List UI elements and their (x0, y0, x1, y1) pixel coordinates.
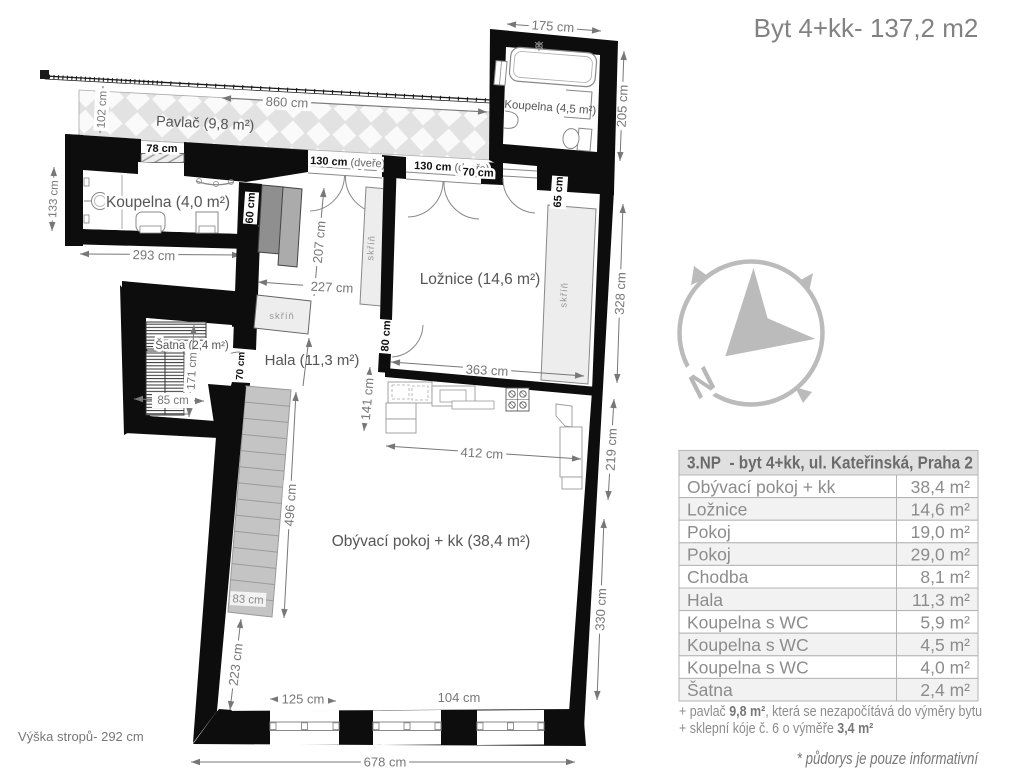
svg-text:Koupelna s WC: Koupelna s WC (687, 612, 809, 632)
svg-text:skříň: skříň (558, 282, 570, 308)
svg-text:Obývací pokoj + kk (38,4 m²): Obývací pokoj + kk (38,4 m²) (332, 533, 531, 550)
svg-text:102 cm: 102 cm (96, 90, 110, 128)
svg-text:175 cm: 175 cm (531, 17, 575, 35)
svg-text:4,5 m²: 4,5 m² (920, 635, 970, 655)
svg-text:Pokoj: Pokoj (687, 522, 731, 542)
svg-text:80 cm: 80 cm (379, 320, 393, 352)
svg-text:412 cm: 412 cm (460, 444, 503, 461)
svg-text:19,0 m²: 19,0 m² (911, 522, 970, 542)
svg-text:Ložnice (14,6 m²): Ložnice (14,6 m²) (420, 271, 541, 288)
svg-text:496 cm: 496 cm (281, 483, 299, 527)
svg-text:78 cm: 78 cm (146, 143, 177, 155)
svg-text:+ sklepní kóje č. 6 o výměře 3: + sklepní kóje č. 6 o výměře 3,4 m² (679, 720, 874, 736)
svg-text:133 cm: 133 cm (47, 180, 61, 218)
svg-text:8,1 m²: 8,1 m² (920, 567, 970, 587)
svg-text:Byt 4+kk- 137,2 m2: Byt 4+kk- 137,2 m2 (754, 13, 979, 43)
svg-text:skříň: skříň (365, 235, 378, 261)
svg-text:+ pavlač 9,8 m², která se neza: + pavlač 9,8 m², která se nezapočítává d… (679, 703, 982, 719)
svg-text:5,9 m²: 5,9 m² (920, 612, 970, 632)
svg-text:678 cm: 678 cm (364, 755, 407, 770)
svg-text:330 cm: 330 cm (592, 588, 609, 631)
svg-text:Koupelna (4,0 m²): Koupelna (4,0 m²) (106, 194, 230, 211)
svg-text:83 cm: 83 cm (232, 593, 264, 607)
svg-text:Obývací pokoj + kk: Obývací pokoj + kk (687, 477, 836, 497)
svg-text:29,0 m²: 29,0 m² (911, 545, 970, 565)
svg-text:171 cm: 171 cm (186, 352, 200, 390)
svg-text:85 cm: 85 cm (157, 395, 188, 407)
svg-text:11,3 m²: 11,3 m² (912, 590, 970, 610)
svg-text:Koupelna s WC: Koupelna s WC (687, 658, 809, 678)
svg-text:293 cm: 293 cm (132, 247, 175, 263)
svg-text:Hala: Hala (687, 590, 723, 610)
svg-text:2,4 m²: 2,4 m² (920, 680, 970, 700)
svg-text:104 cm: 104 cm (438, 690, 481, 705)
svg-text:* půdorys je pouze informativn: * půdorys je pouze informativní (797, 750, 980, 769)
svg-text:Chodba: Chodba (687, 567, 749, 587)
svg-text:60 cm: 60 cm (244, 192, 258, 224)
svg-text:70 cm: 70 cm (462, 166, 494, 179)
svg-text:860 cm: 860 cm (265, 94, 308, 111)
svg-text:Výška stropů- 292 cm: Výška stropů- 292 cm (18, 729, 144, 744)
svg-text:Ložnice: Ložnice (687, 499, 747, 519)
svg-text:328 cm: 328 cm (612, 272, 629, 315)
svg-text:125 cm: 125 cm (282, 692, 325, 707)
svg-text:Šatna: Šatna (687, 679, 733, 700)
svg-text:Pokoj: Pokoj (687, 545, 731, 565)
svg-text:4,0 m²: 4,0 m² (920, 658, 970, 678)
svg-text:3.NP - byt 4+kk, ul. Kateřins: 3.NP - byt 4+kk, ul. Kateřinská, Praha 2 (687, 452, 973, 472)
svg-text:219 cm: 219 cm (603, 428, 620, 471)
svg-text:227 cm: 227 cm (310, 279, 353, 296)
svg-text:65 cm: 65 cm (552, 176, 566, 208)
svg-text:Koupelna s WC: Koupelna s WC (687, 635, 809, 655)
svg-text:14,6 m²: 14,6 m² (911, 499, 970, 519)
svg-text:38,4 m²: 38,4 m² (911, 477, 970, 497)
svg-text:Hala (11,3 m²): Hala (11,3 m²) (265, 352, 360, 369)
svg-text:skříň: skříň (269, 311, 295, 322)
svg-text:70 cm: 70 cm (235, 351, 248, 380)
